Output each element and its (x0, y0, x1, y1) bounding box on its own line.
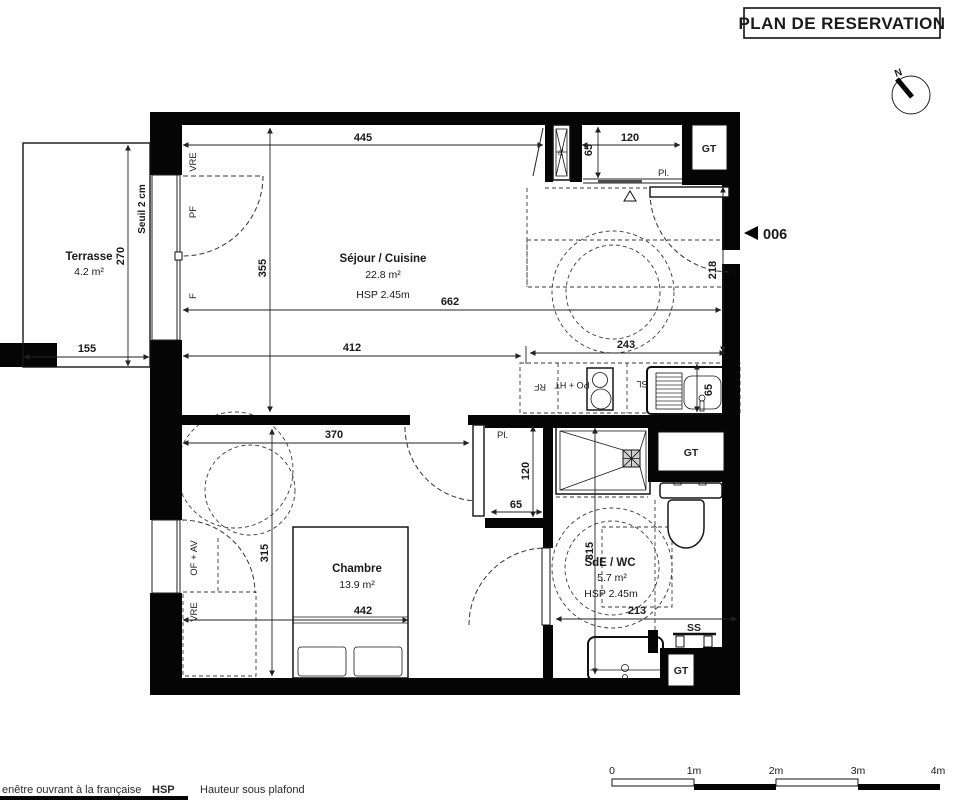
terrace-window-vre-label: VRE (188, 152, 199, 172)
scale-2m: 2m (769, 765, 784, 777)
dim-355: 355 (257, 259, 269, 277)
sejour-hsp: HSP 2.45m (356, 289, 410, 301)
sde-area: 5.7 m² (597, 572, 627, 584)
scale-4m: 4m (931, 765, 946, 777)
sde-door-arc (469, 548, 546, 625)
sde-name: SdE / WC (584, 557, 635, 569)
wc-toilet (660, 480, 722, 548)
terrasse-area: 4.2 m² (74, 266, 104, 278)
sde-hsp: HSP 2.45m (584, 588, 638, 600)
sde-door-leaf (542, 548, 550, 625)
dim-218: 218 (707, 261, 719, 279)
turning-circle-sejour (552, 231, 674, 353)
legend-hsp-abbr: HSP (152, 784, 175, 796)
compass-needle-icon (897, 79, 912, 97)
gt-bottom-label: GT (674, 665, 689, 677)
sejour-name: Séjour / Cuisine (340, 253, 427, 265)
turning-circle-chambre (177, 412, 293, 528)
bed (293, 527, 408, 678)
dim-315-chambre: 315 (259, 544, 271, 562)
sejour-area: 22.8 m² (365, 269, 401, 281)
legend-hsp-meaning: Hauteur sous plafond (200, 784, 305, 796)
dim-213: 213 (628, 605, 646, 617)
gt-top-label: GT (702, 143, 717, 155)
terrasse-name: Terrasse (65, 251, 112, 263)
chambre-door-leaf (473, 425, 484, 516)
bedroom-window (150, 520, 182, 593)
entrance-door-arc (650, 192, 729, 272)
floor-plan-page: PLAN DE RESERVATION N (0, 0, 965, 800)
pl-closet-label: Pl. (497, 430, 508, 441)
dim-445: 445 (354, 132, 372, 144)
dim-155: 155 (78, 343, 96, 355)
compass-north-label: N (893, 67, 904, 80)
dim-120-closet: 120 (520, 462, 532, 480)
title-box: PLAN DE RESERVATION (739, 8, 946, 38)
dim-442: 442 (354, 605, 372, 617)
terrace-window (150, 175, 182, 340)
legend-clipped-bar (0, 796, 188, 800)
towel-rail-ss (673, 634, 716, 647)
scale-3m: 3m (851, 765, 866, 777)
scale-1m: 1m (687, 765, 702, 777)
terrace-window-pf-label: PF (188, 206, 199, 218)
pl-entry-label: Pl. (658, 168, 669, 179)
chambre-door-arc (405, 427, 479, 501)
entry-shaft: PL (553, 125, 570, 180)
shaft-label: PL (559, 148, 565, 156)
entrance-door-leaf (650, 187, 729, 197)
page-title: PLAN DE RESERVATION (739, 14, 946, 33)
entry-direction-triangle-icon (624, 191, 636, 201)
legend-window-text: enêtre ouvrant à la française (2, 784, 141, 796)
terrace-window-f-label: F (188, 293, 199, 299)
dim-243: 243 (617, 339, 635, 351)
terrace-divider-wall (0, 343, 57, 367)
dim-65-sink: 65 (703, 384, 715, 396)
scale-0: 0 (609, 765, 615, 777)
fridge-rf-label: RF (534, 382, 546, 392)
dim-370: 370 (325, 429, 343, 441)
bedroom-window-ofav-label: OF + AV (189, 540, 200, 576)
sink-sl-label: SL (636, 379, 647, 389)
legend: enêtre ouvrant à la française HSP Hauteu… (0, 784, 305, 800)
chambre-area: 13.9 m² (339, 579, 375, 591)
floor-plan-svg: PLAN DE RESERVATION N (0, 0, 965, 800)
cooktop-poht-label: PO + HT (554, 380, 590, 390)
gt-mid-label: GT (684, 447, 699, 459)
dim-120-niche: 120 (621, 132, 639, 144)
kitchen-sink (647, 367, 728, 414)
unit-marker: 006 (744, 226, 787, 243)
ss-label: SS (687, 622, 701, 634)
scale-bar: 0 1m 2m 3m 4m (609, 765, 945, 790)
unit-arrow-icon (744, 226, 758, 240)
bedroom-window-vre-label: VRE (189, 602, 200, 622)
seuil-label: Seuil 2 cm (137, 184, 148, 234)
dim-65-closet: 65 (510, 499, 522, 511)
dim-270: 270 (115, 247, 127, 265)
shower (556, 427, 650, 494)
wc-bowl (668, 500, 704, 548)
dim-412: 412 (343, 342, 361, 354)
north-compass: N (892, 67, 930, 114)
chambre-name: Chambre (332, 563, 382, 575)
unit-number: 006 (763, 227, 787, 243)
dim-65-niche: 65 (583, 144, 595, 156)
dim-662: 662 (441, 296, 459, 308)
entrance-threshold (583, 179, 682, 183)
